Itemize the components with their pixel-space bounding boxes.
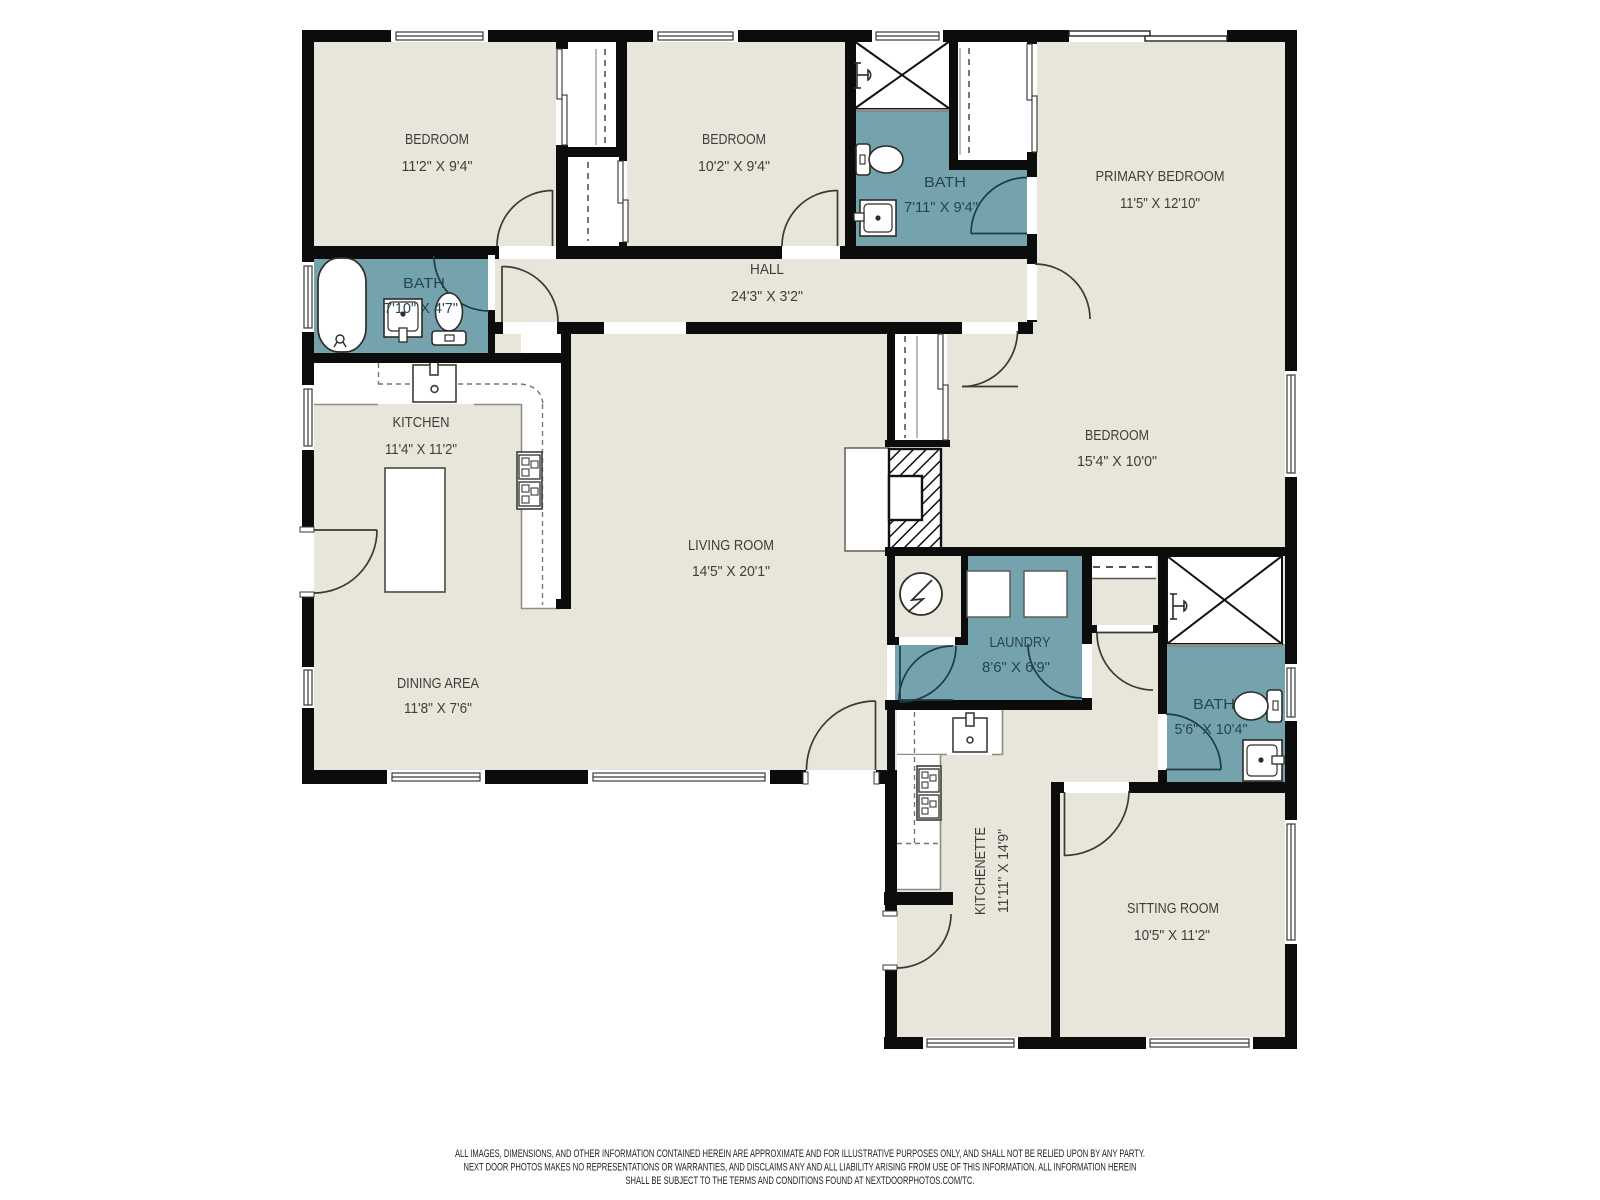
svg-text:KITCHEN: KITCHEN xyxy=(393,414,450,431)
svg-text:SHALL BE SUBJECT TO THE TERMS: SHALL BE SUBJECT TO THE TERMS AND CONDIT… xyxy=(626,1175,975,1187)
svg-text:7'11" X 9'4": 7'11" X 9'4" xyxy=(904,199,978,216)
svg-text:10'5" X 11'2": 10'5" X 11'2" xyxy=(1134,927,1210,944)
svg-text:PRIMARY BEDROOM: PRIMARY BEDROOM xyxy=(1096,168,1225,185)
svg-text:11'2" X 9'4": 11'2" X 9'4" xyxy=(402,158,473,175)
svg-text:10'2" X 9'4": 10'2" X 9'4" xyxy=(698,158,770,175)
svg-text:LIVING ROOM: LIVING ROOM xyxy=(688,537,774,554)
svg-text:ALL IMAGES, DIMENSIONS, AND OT: ALL IMAGES, DIMENSIONS, AND OTHER INFORM… xyxy=(455,1148,1145,1160)
svg-text:BATH: BATH xyxy=(403,275,445,292)
svg-text:HALL: HALL xyxy=(750,261,784,278)
svg-text:7'10" X 4'7": 7'10" X 4'7" xyxy=(384,300,458,317)
svg-text:BEDROOM: BEDROOM xyxy=(702,131,766,148)
svg-text:SITTING ROOM: SITTING ROOM xyxy=(1127,900,1219,917)
svg-text:BATH: BATH xyxy=(924,174,966,191)
svg-text:BEDROOM: BEDROOM xyxy=(405,131,469,148)
svg-text:LAUNDRY: LAUNDRY xyxy=(990,634,1051,651)
svg-text:NEXT DOOR PHOTOS MAKES NO REPR: NEXT DOOR PHOTOS MAKES NO REPRESENTATION… xyxy=(464,1162,1137,1174)
svg-text:15'4" X 10'0": 15'4" X 10'0" xyxy=(1077,453,1157,470)
svg-text:8'6" X 6'9": 8'6" X 6'9" xyxy=(982,659,1050,676)
svg-text:BEDROOM: BEDROOM xyxy=(1085,427,1149,444)
svg-text:24'3" X 3'2": 24'3" X 3'2" xyxy=(731,288,803,305)
svg-text:11'11" X 14'9": 11'11" X 14'9" xyxy=(995,829,1012,913)
svg-text:11'5" X 12'10": 11'5" X 12'10" xyxy=(1120,195,1200,212)
svg-text:14'5" X 20'1": 14'5" X 20'1" xyxy=(692,563,770,580)
svg-text:11'8" X 7'6": 11'8" X 7'6" xyxy=(404,700,472,717)
svg-text:5'6" X 10'4": 5'6" X 10'4" xyxy=(1175,721,1248,738)
svg-text:BATH: BATH xyxy=(1193,696,1235,713)
svg-text:DINING AREA: DINING AREA xyxy=(397,675,479,692)
svg-text:11'4" X 11'2": 11'4" X 11'2" xyxy=(385,441,457,458)
svg-text:KITCHENETTE: KITCHENETTE xyxy=(972,827,989,915)
